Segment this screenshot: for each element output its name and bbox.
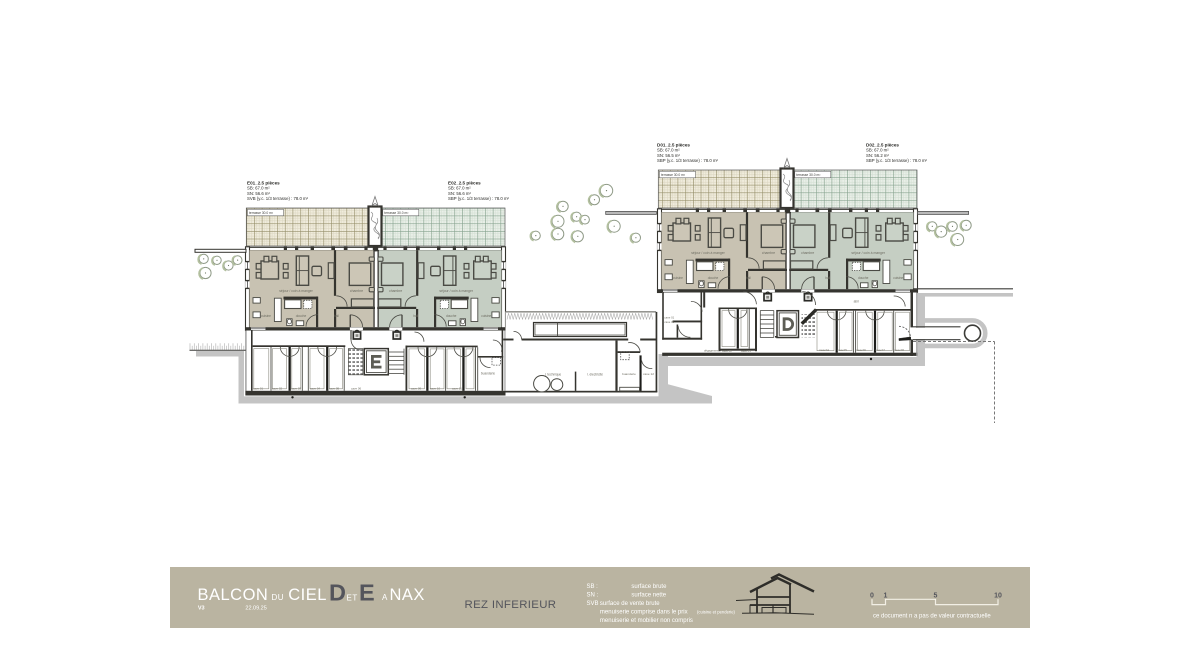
svg-text:cuisine: cuisine	[673, 276, 683, 280]
svg-text:terrasse 30.0 m²: terrasse 30.0 m²	[249, 211, 274, 215]
svg-text:douche: douche	[708, 276, 719, 280]
svg-text:douche: douche	[296, 314, 307, 318]
svg-text:D: D	[329, 580, 346, 606]
svg-text:cave 02: cave 02	[722, 349, 732, 353]
svg-text:abri: abri	[854, 300, 860, 304]
svg-text:buanderie: buanderie	[481, 372, 495, 376]
svg-text:V3: V3	[198, 606, 205, 612]
svg-text:surface brute: surface brute	[631, 584, 667, 590]
svg-text:cuisine: cuisine	[481, 314, 491, 318]
svg-text:A: A	[382, 593, 388, 602]
svg-text:séjour / coin à manger: séjour / coin à manger	[851, 251, 885, 255]
svg-text:cave 03: cave 03	[291, 386, 302, 390]
svg-text:surface nette: surface nette	[631, 593, 666, 599]
svg-text:cave 11: cave 11	[452, 386, 462, 390]
svg-text:cave 05: cave 05	[329, 386, 340, 390]
svg-text:cave 09: cave 09	[411, 386, 422, 390]
svg-text:l. technique: l. technique	[545, 372, 562, 376]
svg-text:0: 0	[870, 593, 874, 600]
svg-text:22.09.25: 22.09.25	[245, 606, 266, 612]
svg-text:surface de vente brute: surface de vente brute	[600, 601, 660, 607]
svg-text:SBP (y.c. 1/3 terrasse) : 78.0: SBP (y.c. 1/3 terrasse) : 78.0 m²	[657, 158, 719, 163]
svg-text:hall: hall	[413, 314, 418, 318]
svg-text:l. électricité: l. électricité	[587, 372, 603, 376]
svg-text:cave 07: cave 07	[875, 348, 885, 352]
svg-text:(cuisine et penderie): (cuisine et penderie)	[697, 610, 736, 615]
svg-text:dégagement: dégagement	[704, 348, 719, 352]
svg-text:cave 04: cave 04	[819, 348, 829, 352]
svg-text:menuiserie comprise dans le pr: menuiserie comprise dans le prix	[600, 610, 688, 616]
svg-text:terrasse 30.0 m²: terrasse 30.0 m²	[796, 173, 821, 177]
svg-text:chambre: chambre	[762, 251, 775, 255]
svg-text:cave 06: cave 06	[351, 386, 362, 390]
svg-text:cave 02: cave 02	[272, 386, 283, 390]
svg-text:buanderie: buanderie	[622, 372, 636, 376]
svg-text:cave 06: cave 06	[856, 348, 866, 352]
svg-text:NAX: NAX	[390, 586, 425, 604]
svg-text:douche: douche	[858, 276, 869, 280]
svg-text:DU: DU	[272, 593, 285, 602]
svg-text:ET: ET	[347, 594, 358, 603]
svg-text:chambre: chambre	[389, 289, 402, 293]
svg-text:SN :: SN :	[587, 593, 599, 599]
svg-text:SBP (y.c. 1/3 terrasse) : 78.0: SBP (y.c. 1/3 terrasse) : 78.0 m²	[866, 158, 928, 163]
svg-text:CIEL: CIEL	[288, 586, 327, 604]
svg-text:10: 10	[994, 593, 1002, 600]
svg-text:hall: hall	[825, 276, 830, 280]
svg-text:REZ INFERIEUR: REZ INFERIEUR	[465, 599, 557, 611]
svg-text:terrasse 30.0 m²: terrasse 30.0 m²	[661, 173, 686, 177]
svg-text:menuiserie et mobilier non com: menuiserie et mobilier non compris	[600, 618, 693, 624]
svg-text:hall: hall	[334, 314, 339, 318]
svg-text:SBP (y.c. 1/3 terrasse) : 78.0: SBP (y.c. 1/3 terrasse) : 78.0 m²	[448, 196, 510, 201]
svg-text:séjour / coin à manger: séjour / coin à manger	[439, 289, 473, 293]
svg-text:5: 5	[934, 593, 938, 600]
svg-text:cave 05: cave 05	[837, 348, 847, 352]
svg-text:cave 02: cave 02	[664, 320, 674, 324]
svg-text:terrasse 30.0 m²: terrasse 30.0 m²	[384, 211, 409, 215]
svg-text:cave 10: cave 10	[430, 386, 441, 390]
svg-text:cave 08: cave 08	[894, 348, 904, 352]
svg-text:douche: douche	[446, 314, 457, 318]
svg-text:cuisine: cuisine	[893, 276, 903, 280]
svg-text:chambre: chambre	[350, 289, 363, 293]
svg-text:séjour / coin à manger: séjour / coin à manger	[279, 289, 313, 293]
svg-text:ce document n a pas de valeur: ce document n a pas de valeur contractue…	[873, 613, 991, 619]
svg-text:hall: hall	[746, 276, 751, 280]
svg-text:SB :: SB :	[587, 584, 599, 590]
svg-text:cave 03: cave 03	[741, 349, 751, 353]
svg-text:cuisine: cuisine	[261, 314, 271, 318]
svg-text:chambre: chambre	[801, 251, 814, 255]
svg-text:cave 01: cave 01	[253, 386, 264, 390]
svg-text:SVB (y.c. 1/3 terrasse) : 78.0: SVB (y.c. 1/3 terrasse) : 78.0 m²	[247, 196, 309, 201]
svg-text:cave 04: cave 04	[310, 386, 321, 390]
svg-text:BALCON: BALCON	[198, 586, 269, 604]
svg-text:cave 12: cave 12	[643, 372, 654, 376]
svg-text:1: 1	[884, 593, 888, 600]
svg-text:E: E	[359, 580, 375, 606]
svg-text:séjour / coin à manger: séjour / coin à manger	[691, 251, 725, 255]
